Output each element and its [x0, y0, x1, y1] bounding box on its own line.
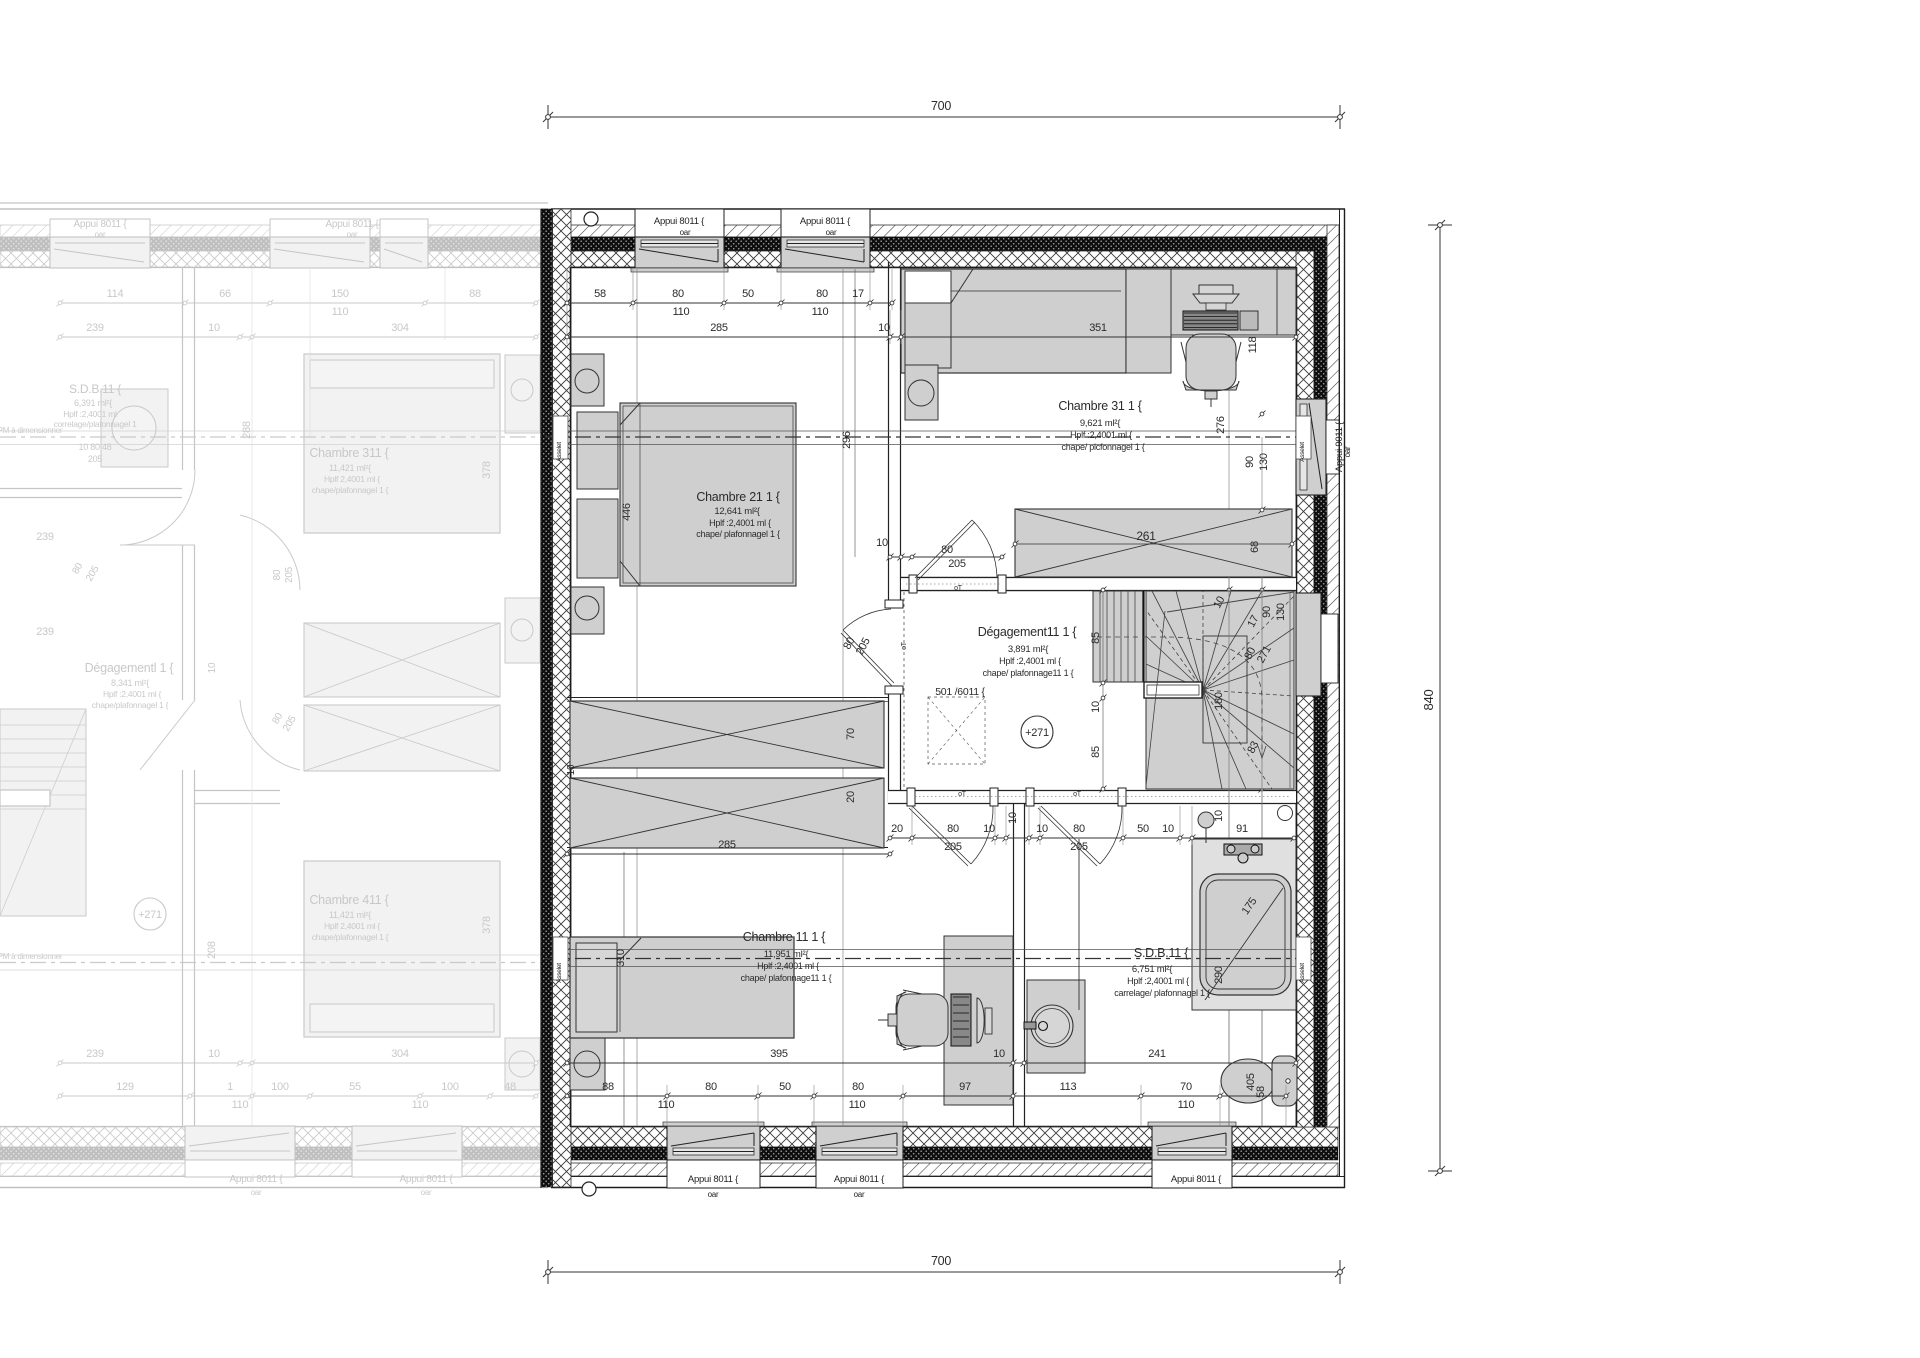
- svg-text:10: 10: [876, 537, 888, 549]
- svg-text:840: 840: [1421, 690, 1436, 711]
- svg-text:378: 378: [481, 461, 493, 479]
- svg-text:Hplf 2,4001 ml {: Hplf 2,4001 ml {: [324, 474, 380, 484]
- svg-text:1: 1: [227, 1081, 233, 1093]
- svg-text:70: 70: [845, 728, 857, 740]
- svg-text:10: 10: [1090, 701, 1102, 713]
- svg-text:58: 58: [594, 288, 606, 300]
- svg-text:48: 48: [504, 1081, 516, 1093]
- svg-text:10: 10: [1162, 823, 1174, 835]
- svg-text:Asselet: Asselet: [1299, 963, 1306, 983]
- svg-text:chape/ plafonnage11 1 {: chape/ plafonnage11 1 {: [741, 973, 832, 983]
- svg-text:8,341 ml²{: 8,341 ml²{: [111, 678, 149, 688]
- svg-text:55: 55: [349, 1081, 361, 1093]
- svg-text:88: 88: [469, 288, 481, 300]
- svg-text:oar: oar: [708, 1190, 719, 1199]
- svg-text:80: 80: [1073, 823, 1085, 835]
- svg-text:20: 20: [845, 791, 857, 803]
- svg-text:304: 304: [391, 322, 409, 334]
- svg-text:Chambre 11 1 {: Chambre 11 1 {: [743, 930, 826, 944]
- svg-text:501 /6011 {: 501 /6011 {: [935, 686, 985, 698]
- svg-text:118: 118: [1247, 336, 1259, 353]
- svg-text:Chambre 21 1 {: Chambre 21 1 {: [696, 490, 779, 504]
- svg-text:239: 239: [36, 531, 54, 543]
- svg-text:290: 290: [1213, 966, 1225, 984]
- svg-text:6,391 ml²{: 6,391 ml²{: [74, 398, 112, 408]
- svg-text:296: 296: [841, 431, 853, 449]
- svg-text:Appui 8011 {: Appui 8011 {: [654, 216, 704, 227]
- svg-text:Appui 8011 {: Appui 8011 {: [230, 1174, 284, 1185]
- svg-text:oar: oar: [826, 228, 837, 237]
- svg-text:90: 90: [1261, 606, 1273, 618]
- svg-text:oar: oar: [421, 1188, 432, 1197]
- svg-text:91: 91: [1236, 823, 1248, 835]
- svg-text:288: 288: [241, 421, 253, 439]
- svg-text:700: 700: [931, 1254, 951, 1268]
- svg-text:97: 97: [959, 1081, 971, 1093]
- svg-text:276: 276: [1215, 416, 1227, 434]
- svg-text:700: 700: [931, 99, 951, 113]
- svg-text:351: 351: [1089, 322, 1107, 334]
- svg-text:carrelage/ plafonnagel 1 {: carrelage/ plafonnagel 1 {: [1114, 988, 1210, 998]
- svg-text:17: 17: [852, 288, 864, 300]
- svg-text:Asselet: Asselet: [556, 963, 563, 983]
- svg-text:Appui 8011 {: Appui 8011 {: [688, 1174, 738, 1185]
- svg-text:110: 110: [412, 1099, 429, 1111]
- svg-text:Chambre 411 {: Chambre 411 {: [309, 893, 388, 907]
- svg-text:261: 261: [1136, 529, 1156, 543]
- svg-text:oar: oar: [1343, 446, 1352, 457]
- svg-text:130: 130: [1275, 603, 1287, 621]
- svg-text:+271: +271: [1025, 727, 1049, 739]
- svg-text:113: 113: [1060, 1081, 1077, 1093]
- svg-text:12,641 ml²{: 12,641 ml²{: [714, 506, 759, 517]
- svg-text:PM à dimensionner: PM à dimensionner: [0, 952, 63, 961]
- svg-text:85: 85: [1090, 746, 1102, 758]
- svg-text:chape/plafonnagel 1 {: chape/plafonnagel 1 {: [312, 932, 389, 942]
- svg-text:208: 208: [206, 941, 218, 959]
- svg-text:10: 10: [983, 823, 995, 835]
- svg-text:80: 80: [272, 569, 283, 580]
- svg-text:Appui 8011 {: Appui 8011 {: [74, 219, 128, 230]
- svg-text:80: 80: [852, 1081, 864, 1093]
- svg-text:110: 110: [1178, 1099, 1195, 1111]
- svg-text:Hplf 2,4001 ml {: Hplf 2,4001 ml {: [324, 921, 380, 931]
- svg-text:10: 10: [878, 322, 890, 334]
- svg-text:150: 150: [331, 288, 349, 300]
- svg-text:100: 100: [441, 1081, 459, 1093]
- svg-text:110: 110: [232, 1099, 249, 1111]
- svg-text:130: 130: [1258, 453, 1270, 471]
- svg-text:180: 180: [1213, 692, 1225, 710]
- svg-text:oar: oar: [251, 1188, 262, 1197]
- svg-text:Chambre 31 1 {: Chambre 31 1 {: [1058, 399, 1141, 413]
- svg-text:PM à dimensionner: PM à dimensionner: [0, 426, 63, 435]
- svg-text:70: 70: [1180, 1081, 1192, 1093]
- svg-text:10: 10: [1213, 810, 1225, 822]
- svg-text:chape/ plcfonnagel 1 {: chape/ plcfonnagel 1 {: [1061, 442, 1144, 452]
- svg-text:Appui 8011 {: Appui 8011 {: [834, 1174, 884, 1185]
- svg-text:110: 110: [812, 306, 829, 318]
- svg-text:285: 285: [710, 322, 728, 334]
- svg-text:285: 285: [718, 839, 736, 851]
- svg-text:10 80 48: 10 80 48: [78, 442, 111, 452]
- svg-text:114: 114: [107, 288, 124, 300]
- svg-text:11,951 ml²{: 11,951 ml²{: [764, 949, 809, 960]
- svg-text:Chambre 311 {: Chambre 311 {: [309, 446, 388, 460]
- svg-text:80: 80: [672, 288, 684, 300]
- svg-text:Appui 8011 {: Appui 8011 {: [800, 216, 850, 227]
- svg-text:chape/plafonnagel 1 {: chape/plafonnagel 1 {: [92, 700, 169, 710]
- svg-text:9,621 ml²{: 9,621 ml²{: [1080, 418, 1120, 429]
- svg-text:80: 80: [947, 823, 959, 835]
- svg-text:88: 88: [602, 1081, 614, 1093]
- svg-text:10: 10: [207, 662, 218, 673]
- svg-text:Hplf :2,4001 ml {: Hplf :2,4001 ml {: [1127, 976, 1189, 986]
- svg-text:205: 205: [948, 558, 966, 570]
- svg-text:chape/ plafonnagel 1 {: chape/ plafonnagel 1 {: [696, 529, 780, 539]
- svg-text:10: 10: [1036, 823, 1048, 835]
- svg-text:110: 110: [658, 1099, 675, 1111]
- svg-text:Hplf :2,4001 ml {: Hplf :2,4001 ml {: [1070, 430, 1132, 440]
- svg-text:oT: oT: [958, 791, 967, 798]
- svg-text:20: 20: [891, 823, 903, 835]
- svg-text:50: 50: [1137, 823, 1149, 835]
- svg-text:10: 10: [566, 764, 577, 775]
- svg-text:68: 68: [1249, 541, 1261, 553]
- svg-text:110: 110: [673, 306, 690, 318]
- svg-text:10: 10: [993, 1048, 1005, 1060]
- svg-text:chape/ plafonnage11 1 {: chape/ plafonnage11 1 {: [983, 668, 1074, 678]
- svg-text:S.D.B.11 {: S.D.B.11 {: [69, 382, 121, 396]
- svg-text:395: 395: [770, 1048, 788, 1060]
- svg-text:Hplf :2,4001 ml {: Hplf :2,4001 ml {: [999, 656, 1061, 666]
- svg-text:Dégagementl 1 {: Dégagementl 1 {: [85, 661, 174, 675]
- svg-text:241: 241: [1148, 1048, 1166, 1060]
- svg-text:11,421 ml²{: 11,421 ml²{: [329, 463, 371, 473]
- svg-text:80: 80: [941, 544, 953, 556]
- svg-text:Appui 8011 {: Appui 8011 {: [326, 219, 380, 230]
- svg-text:Hplf :2,4001 ml: Hplf :2,4001 ml: [63, 409, 117, 419]
- svg-text:oT: oT: [1073, 791, 1082, 798]
- svg-text:446: 446: [621, 503, 633, 521]
- svg-text:378: 378: [481, 916, 493, 934]
- svg-text:310: 310: [615, 949, 627, 967]
- svg-text:205: 205: [88, 454, 103, 464]
- svg-text:Hplf :2,4001 ml {: Hplf :2,4001 ml {: [757, 961, 819, 971]
- svg-text:10: 10: [208, 322, 220, 334]
- svg-text:50: 50: [742, 288, 754, 300]
- svg-text:oT: oT: [901, 641, 908, 650]
- svg-text:66: 66: [219, 288, 231, 300]
- svg-text:50: 50: [779, 1081, 791, 1093]
- svg-text:oar: oar: [680, 228, 691, 237]
- svg-text:Asselet: Asselet: [1299, 442, 1306, 462]
- svg-text:+271: +271: [138, 909, 162, 921]
- svg-text:Appui 8011 {: Appui 8011 {: [400, 1174, 454, 1185]
- svg-text:129: 129: [116, 1081, 134, 1093]
- svg-text:oar: oar: [347, 230, 358, 239]
- svg-text:239: 239: [36, 626, 54, 638]
- svg-text:chape/plafonnagel 1 {: chape/plafonnagel 1 {: [312, 485, 389, 495]
- svg-text:205: 205: [944, 841, 962, 853]
- svg-text:Hplf :2,4001 ml {: Hplf :2,4001 ml {: [103, 689, 162, 699]
- svg-text:10: 10: [1007, 812, 1019, 824]
- svg-text:85: 85: [1090, 632, 1102, 644]
- svg-text:Appui 8011 {: Appui 8011 {: [1171, 1174, 1221, 1185]
- svg-text:100: 100: [271, 1081, 289, 1093]
- svg-text:10: 10: [208, 1048, 220, 1060]
- svg-text:80: 80: [816, 288, 828, 300]
- svg-text:3,891 ml²{: 3,891 ml²{: [1008, 644, 1048, 655]
- svg-text:Asselet: Asselet: [556, 442, 563, 462]
- svg-text:90: 90: [1244, 456, 1256, 468]
- svg-text:oar: oar: [854, 1190, 865, 1199]
- svg-text:110: 110: [332, 306, 349, 318]
- svg-text:205: 205: [1070, 841, 1088, 853]
- svg-text:oT: oT: [954, 585, 963, 592]
- svg-text:Hplf :2,4001 ml {: Hplf :2,4001 ml {: [709, 518, 771, 528]
- svg-text:110: 110: [849, 1099, 866, 1111]
- svg-text:239: 239: [86, 322, 104, 334]
- svg-text:11,421 ml²{: 11,421 ml²{: [329, 910, 371, 920]
- svg-text:304: 304: [391, 1048, 409, 1060]
- svg-text:205: 205: [284, 566, 295, 583]
- svg-text:correlage/plafonnagel 1: correlage/plafonnagel 1: [53, 419, 137, 429]
- svg-text:6,751 ml²{: 6,751 ml²{: [1132, 964, 1172, 975]
- svg-text:Dégagement11 1 {: Dégagement11 1 {: [978, 625, 1077, 639]
- svg-text:oar: oar: [95, 230, 106, 239]
- svg-text:239: 239: [86, 1048, 104, 1060]
- svg-text:S.D.B.11 {: S.D.B.11 {: [1134, 946, 1188, 960]
- svg-text:80: 80: [705, 1081, 717, 1093]
